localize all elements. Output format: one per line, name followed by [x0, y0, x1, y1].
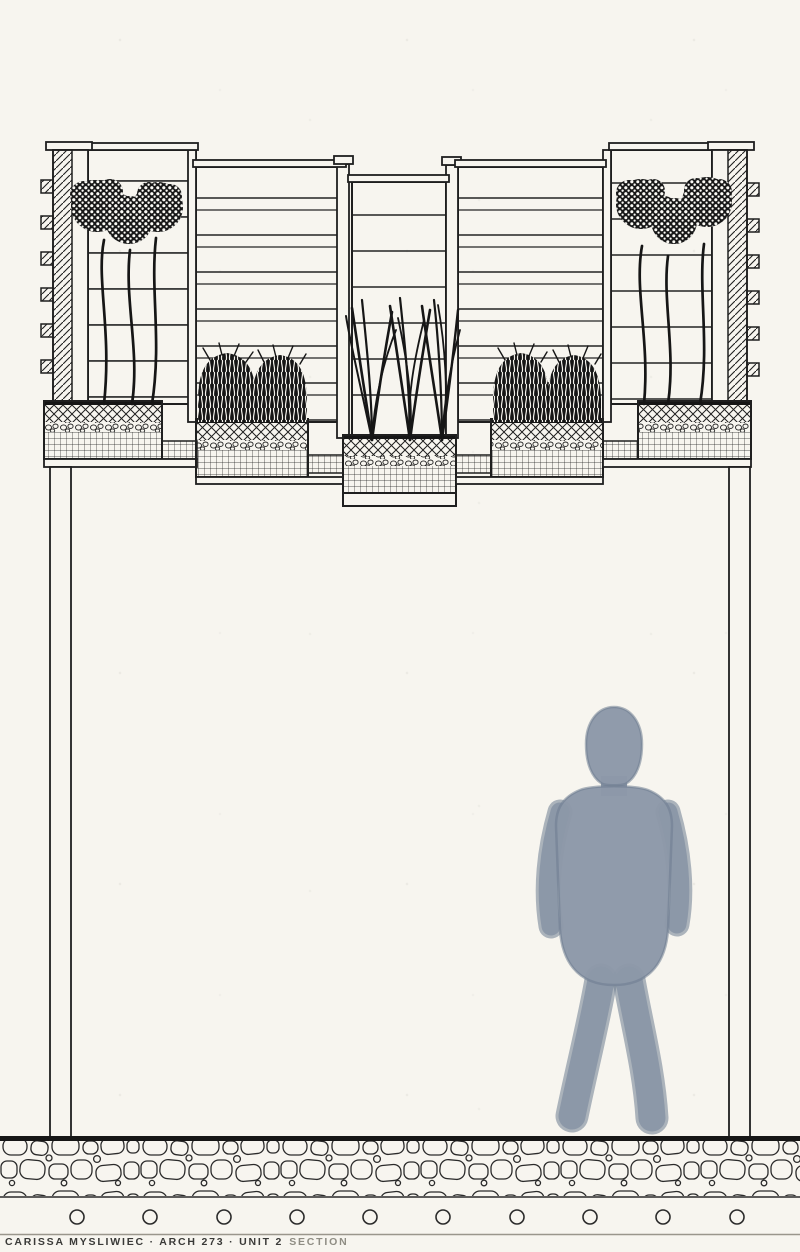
- frame-post-a: [188, 150, 196, 422]
- post-b-cap: [334, 156, 353, 164]
- stone-slab: [0, 1141, 800, 1196]
- planter-left-mid: [196, 419, 343, 484]
- caption-sheet-title: SECTION: [289, 1236, 348, 1248]
- wall-bracket-tabs-right: [747, 183, 759, 376]
- wall-column-right: [729, 467, 750, 1137]
- planter-center: [343, 435, 456, 506]
- planter-right-mid: [456, 419, 603, 484]
- section-drawing: [0, 0, 800, 1252]
- screen-cap-3: [348, 175, 449, 182]
- planter-left-outer: [44, 401, 197, 467]
- screen-cap-1: [86, 143, 198, 150]
- screen-cap-5: [609, 143, 716, 150]
- frame-post-d: [603, 150, 611, 422]
- wall-column-left: [50, 467, 71, 1137]
- figure-head: [586, 707, 642, 785]
- deck-soffit-right: [603, 459, 751, 467]
- frame-post-b: [337, 164, 349, 438]
- caption-main: CARISSA MYSLIWIEC · ARCH 273 · UNIT 2: [5, 1236, 283, 1248]
- screen-cap-2: [193, 160, 346, 167]
- ground-top-line: [0, 1136, 800, 1141]
- ground: [0, 1136, 800, 1197]
- anchor-circles: [70, 1210, 744, 1224]
- planter-right-outer: [603, 401, 751, 467]
- human-figure: [548, 707, 680, 1118]
- screen-cap-4: [455, 160, 606, 167]
- figure-torso: [556, 786, 672, 985]
- drawing-sheet: CARISSA MYSLIWIEC · ARCH 273 · UNIT 2SEC…: [0, 0, 800, 1252]
- wall-bracket-tabs-left: [41, 180, 53, 373]
- title-caption: CARISSA MYSLIWIEC · ARCH 273 · UNIT 2SEC…: [5, 1236, 348, 1248]
- deck-soffit-left: [44, 459, 197, 467]
